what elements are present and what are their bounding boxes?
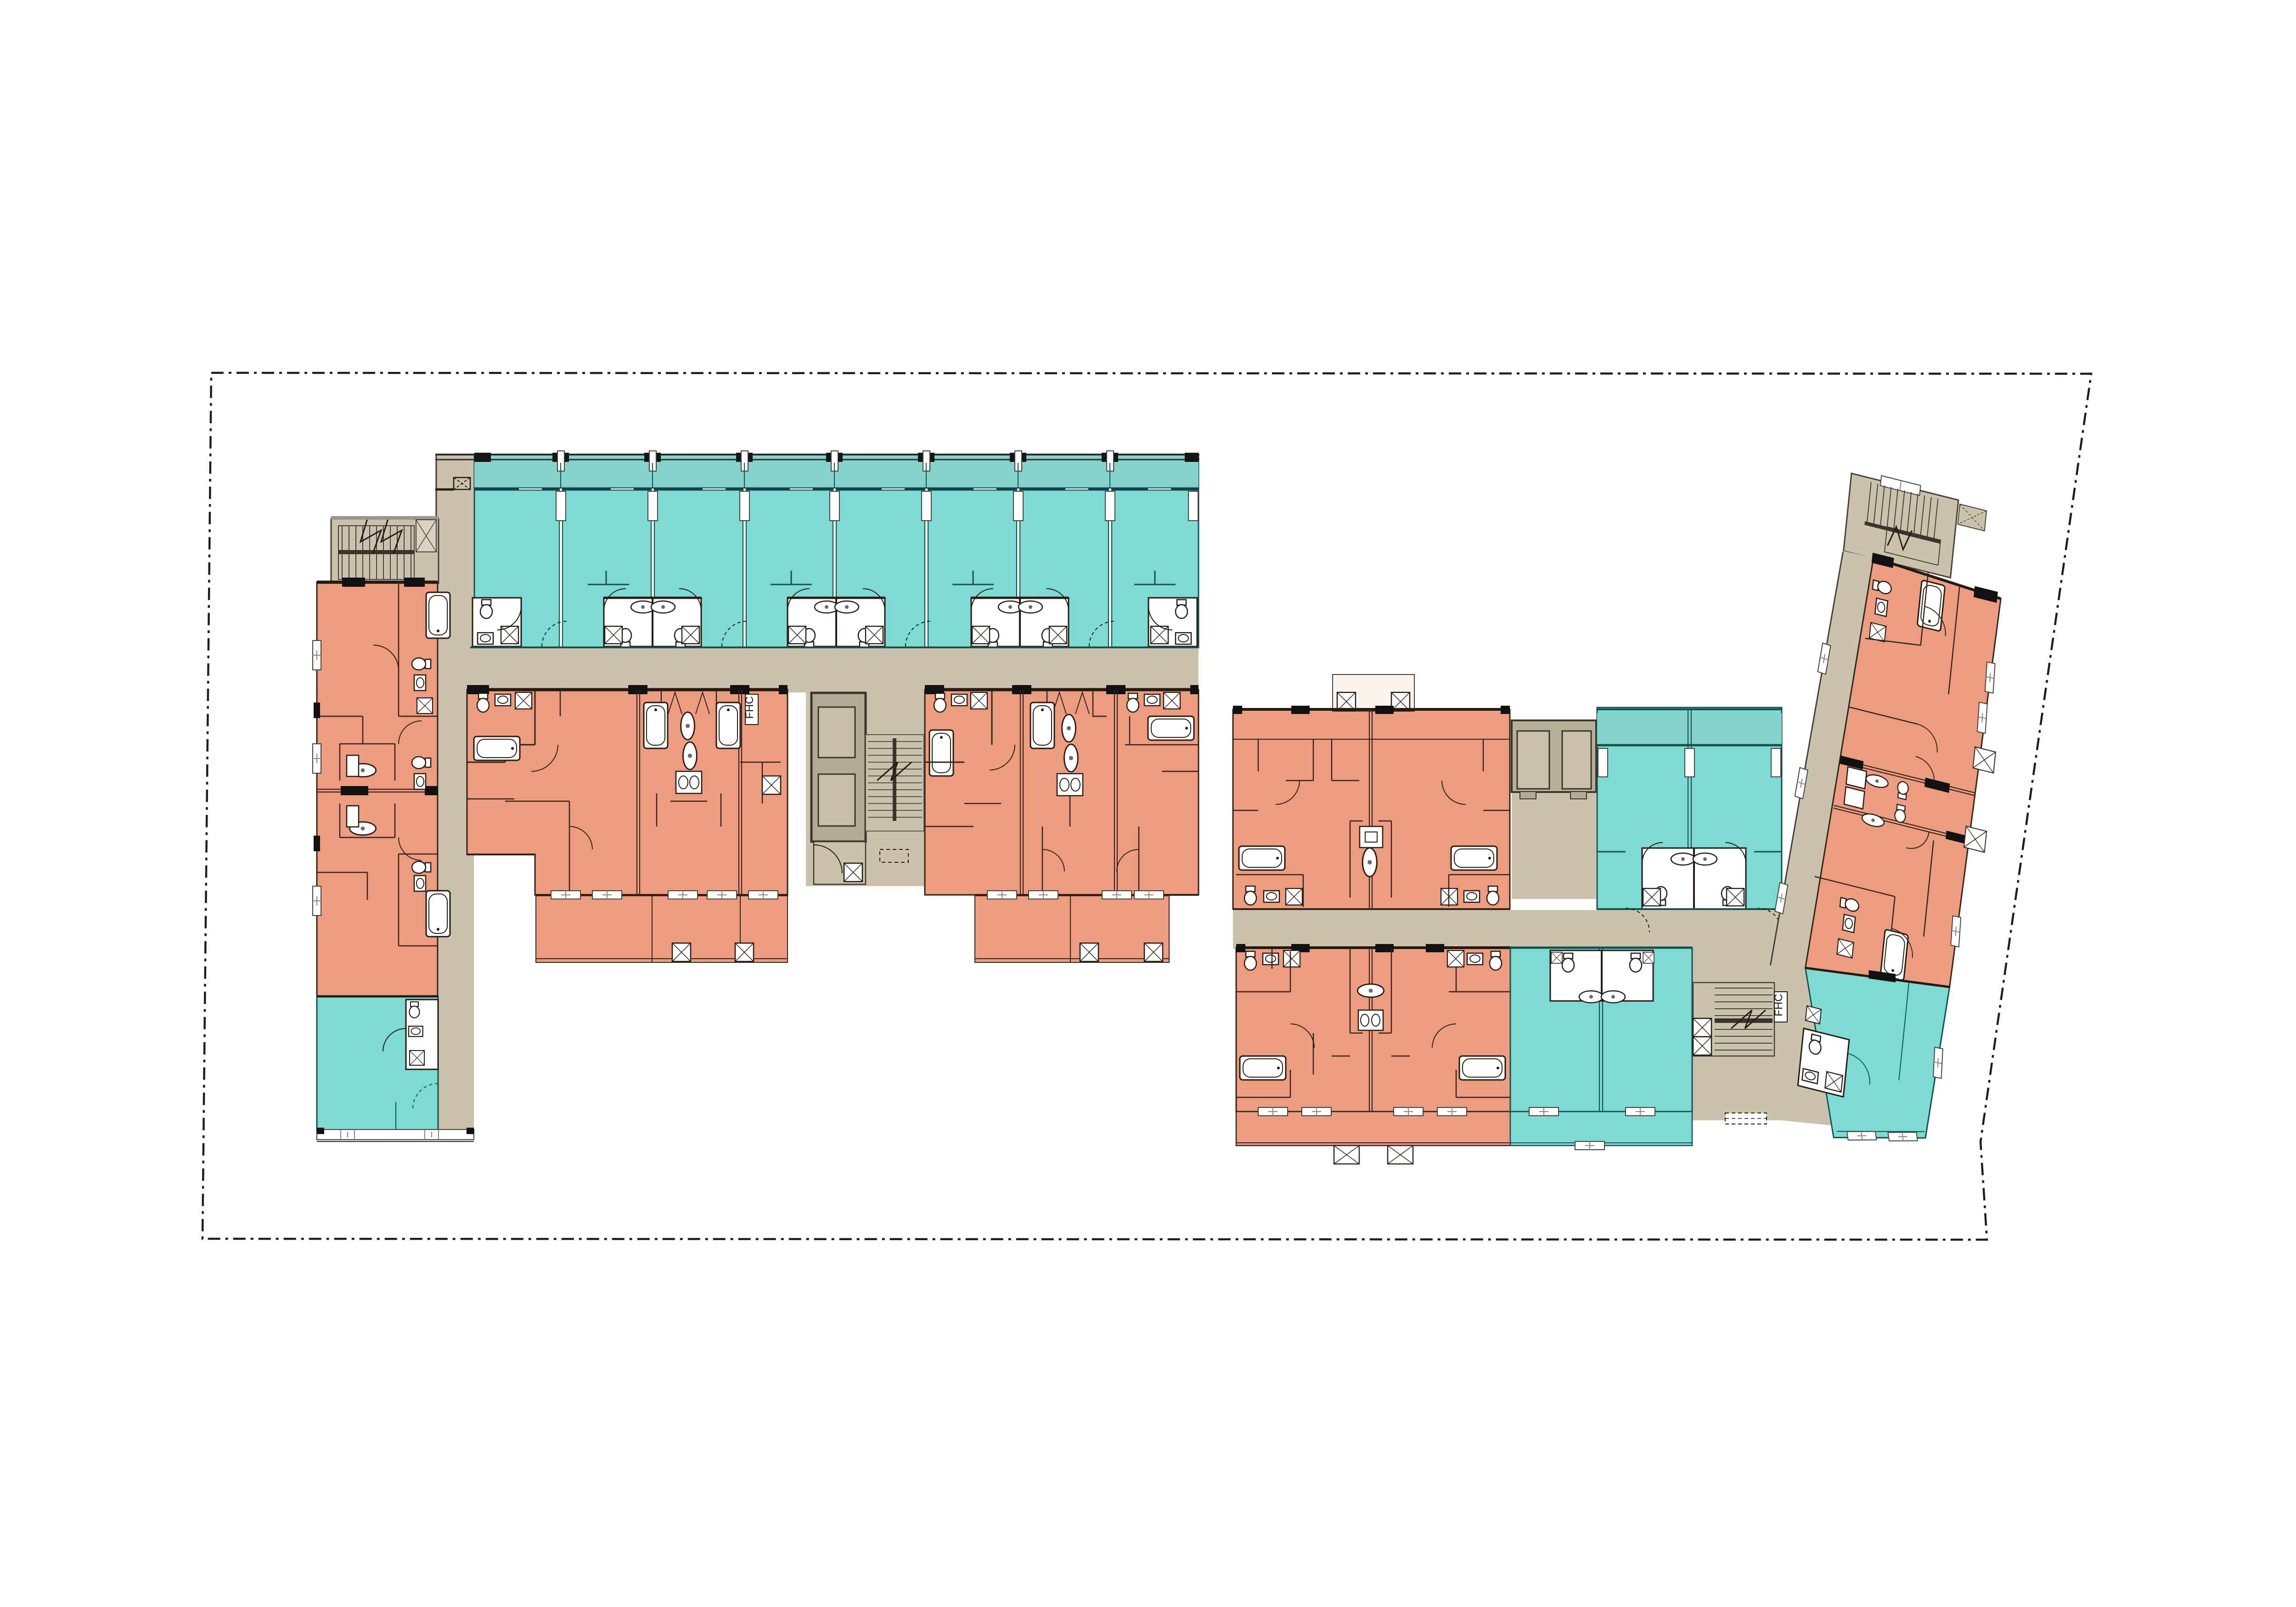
svg-text:FHC: FHC: [1773, 994, 1785, 1016]
svg-text:FHC: FHC: [743, 696, 756, 719]
